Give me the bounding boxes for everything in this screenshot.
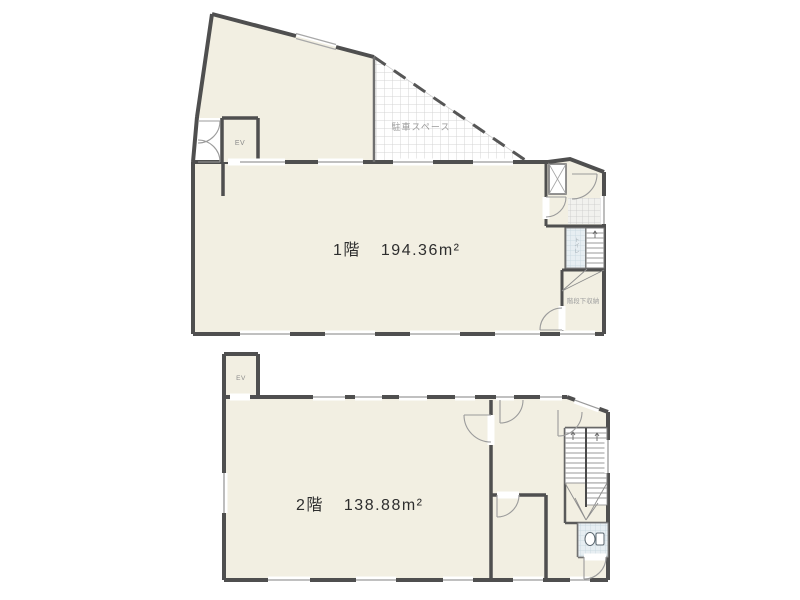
floor-plan-canvas: EV トイレ — [0, 0, 800, 600]
ev-label: EV — [236, 375, 246, 382]
floor2-area: 138.88m² — [344, 497, 424, 514]
floor2-name: 2階 — [296, 496, 324, 514]
entrance-tile-floor — [568, 198, 604, 224]
floor1-plan: EV トイレ — [193, 14, 608, 338]
floor-plan-page: EV トイレ — [0, 0, 800, 600]
floor2-room-fill — [224, 354, 608, 580]
ev-label: EV — [235, 140, 245, 147]
floor2-area-label: 2階138.88m² — [296, 496, 424, 514]
floor2-plan: EV — [221, 354, 612, 584]
floor1-area: 194.36m² — [381, 242, 461, 259]
parking-label: 駐車スペース — [392, 121, 451, 132]
floor1-area-label: 1階194.36m² — [333, 241, 461, 259]
toilet-label: トイレ — [573, 237, 580, 254]
under-stair-storage-label: 階段下収納 — [567, 296, 600, 305]
floor1-name: 1階 — [333, 241, 361, 259]
floor1-room-fill — [193, 14, 604, 334]
